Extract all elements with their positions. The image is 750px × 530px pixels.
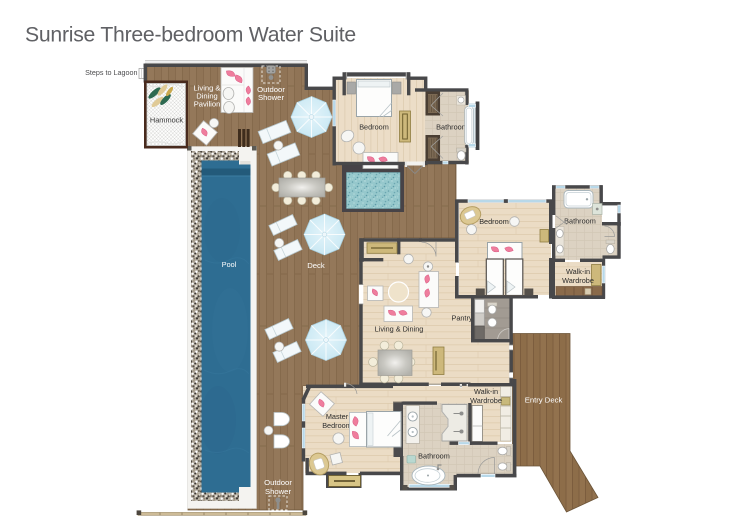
svg-text:Walk-in: Walk-in [566,267,590,276]
svg-text:Outdoor: Outdoor [264,478,292,487]
svg-text:Bathroom: Bathroom [564,217,596,226]
svg-text:Shower: Shower [265,487,292,496]
svg-text:Entry Deck: Entry Deck [525,396,563,405]
svg-text:Bedroom: Bedroom [479,217,509,226]
svg-text:Pantry: Pantry [451,314,472,323]
svg-text:Master: Master [326,412,349,421]
svg-text:Walk-in: Walk-in [474,387,498,396]
svg-text:Hammock: Hammock [150,116,184,125]
svg-text:Bathroom: Bathroom [418,452,450,461]
svg-text:Deck: Deck [307,261,325,270]
svg-text:Steps to Lagoon: Steps to Lagoon [85,68,137,77]
svg-text:Wardrobe: Wardrobe [470,396,502,405]
svg-text:Sunrise Three-bedroom Water Su: Sunrise Three-bedroom Water Suite [25,24,356,47]
svg-text:Bathroom: Bathroom [436,123,468,132]
svg-text:Wardrobe: Wardrobe [562,276,594,285]
svg-text:Bedroom: Bedroom [322,421,352,430]
svg-text:Pool: Pool [222,260,237,269]
svg-text:Living & Dining: Living & Dining [375,325,424,334]
svg-text:Shower: Shower [258,93,285,102]
svg-text:Pavilion: Pavilion [194,100,221,109]
svg-text:Bedroom: Bedroom [359,123,389,132]
